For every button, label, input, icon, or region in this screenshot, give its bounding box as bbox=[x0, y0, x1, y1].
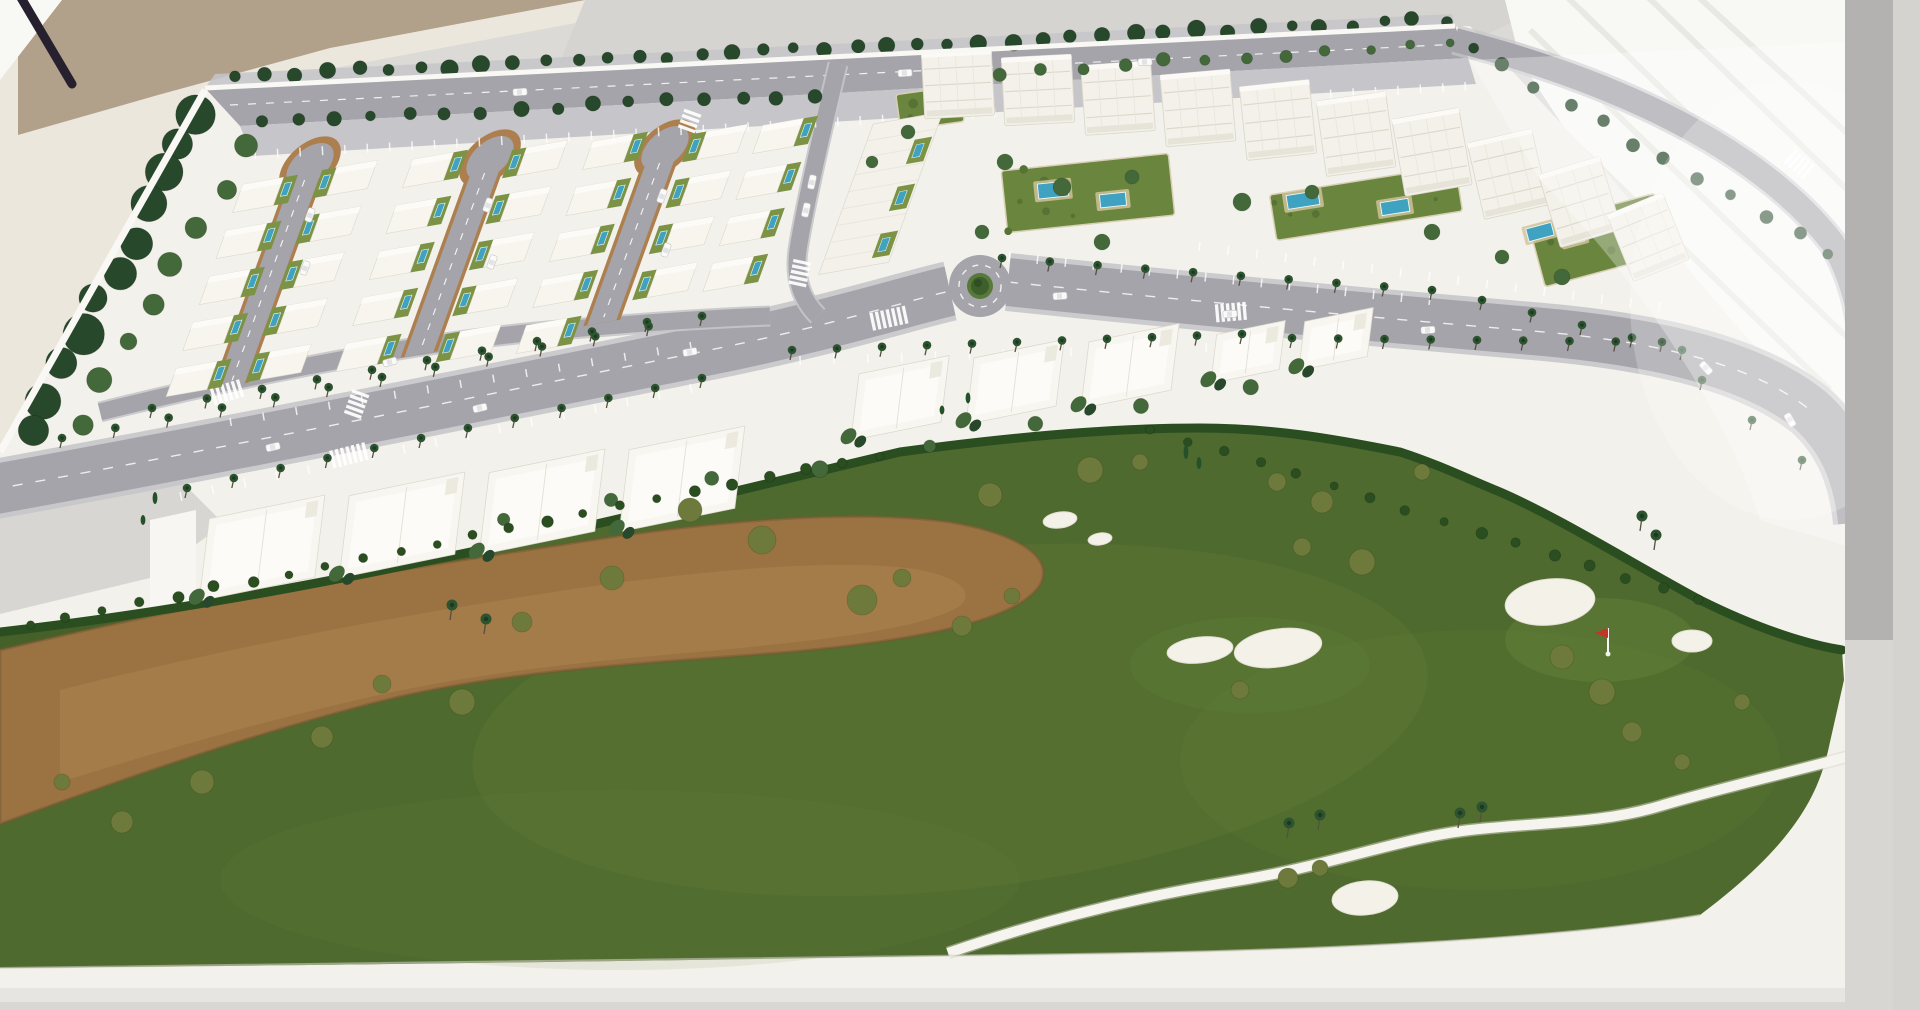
palm-crown-core bbox=[1475, 338, 1478, 341]
tree bbox=[634, 50, 647, 63]
palm-crown-core bbox=[1239, 274, 1242, 277]
model-car bbox=[1053, 292, 1067, 300]
window-frame-bar bbox=[1845, 0, 1893, 640]
tree bbox=[993, 68, 1006, 81]
tree bbox=[120, 333, 137, 350]
palm-crown-core bbox=[1015, 340, 1018, 343]
tree bbox=[1183, 438, 1192, 447]
palm-crown-core bbox=[487, 355, 490, 358]
tree bbox=[1330, 482, 1338, 490]
bush bbox=[1053, 178, 1071, 196]
palm-crown-core bbox=[434, 365, 437, 368]
palm-crown-core bbox=[60, 436, 63, 439]
parking-stripe bbox=[367, 144, 368, 153]
tree bbox=[504, 523, 514, 533]
tree bbox=[1511, 538, 1521, 548]
palm-crown-core bbox=[326, 456, 329, 459]
tree bbox=[416, 62, 427, 73]
palm-crown-core bbox=[1458, 811, 1462, 815]
bush bbox=[1094, 234, 1110, 250]
palm-crown-core bbox=[315, 378, 318, 381]
tree bbox=[1584, 560, 1595, 571]
tree bbox=[541, 55, 552, 66]
cypress-tree bbox=[1184, 445, 1189, 459]
bush bbox=[1278, 868, 1298, 888]
car-windshield bbox=[517, 89, 522, 94]
palm-crown-core bbox=[1383, 337, 1386, 340]
palm-crown-core bbox=[1654, 533, 1658, 537]
palm-crown-core bbox=[327, 385, 330, 388]
tree bbox=[18, 415, 48, 445]
bush bbox=[54, 774, 70, 790]
tree bbox=[87, 367, 112, 392]
tree bbox=[660, 92, 674, 106]
parking-stripe bbox=[1261, 278, 1262, 287]
tree bbox=[837, 458, 847, 468]
bush bbox=[1312, 860, 1328, 876]
tree bbox=[579, 509, 587, 517]
parking-stripe bbox=[1401, 293, 1402, 302]
apartment-block bbox=[921, 49, 994, 119]
palm-crown-core bbox=[232, 476, 235, 479]
tree bbox=[1365, 493, 1375, 503]
parking-stripe bbox=[389, 142, 390, 151]
bush bbox=[600, 566, 624, 590]
tree bbox=[623, 96, 634, 107]
cypress-tree bbox=[966, 393, 971, 404]
bush bbox=[1674, 754, 1690, 770]
palm-crown-core bbox=[1290, 336, 1293, 339]
tree bbox=[788, 43, 798, 53]
tree bbox=[808, 89, 822, 103]
tree bbox=[143, 294, 164, 315]
tree bbox=[1028, 416, 1043, 431]
palm-crown-core bbox=[1480, 298, 1483, 301]
bush bbox=[1077, 457, 1103, 483]
tree bbox=[1146, 425, 1155, 434]
bush bbox=[1004, 588, 1020, 604]
model-car bbox=[513, 88, 527, 96]
tree bbox=[319, 62, 335, 78]
apartment-block bbox=[1239, 80, 1316, 161]
tree bbox=[757, 44, 769, 56]
tree bbox=[185, 217, 207, 239]
bush bbox=[866, 156, 878, 168]
tree bbox=[1243, 379, 1259, 395]
tree bbox=[769, 91, 783, 105]
window-frame-bar-lower bbox=[1845, 640, 1893, 1010]
tree bbox=[397, 547, 406, 556]
tree bbox=[468, 530, 477, 539]
tree bbox=[851, 39, 865, 53]
apartment-block bbox=[1392, 108, 1473, 197]
bush bbox=[1495, 250, 1509, 264]
parking-stripe bbox=[1009, 252, 1010, 261]
tree bbox=[293, 113, 305, 125]
parking-stripe bbox=[1345, 287, 1346, 296]
palm-crown-core bbox=[1522, 339, 1525, 342]
parking-stripe bbox=[658, 127, 659, 136]
bush bbox=[1311, 491, 1333, 513]
palm-crown-core bbox=[484, 617, 488, 621]
parking-stripe bbox=[501, 136, 502, 145]
bush bbox=[952, 616, 972, 636]
bush bbox=[1349, 549, 1375, 575]
townhouse-notch bbox=[1265, 326, 1279, 344]
parking-stripe bbox=[1420, 85, 1421, 94]
tree bbox=[1620, 573, 1630, 583]
palm-crown-core bbox=[1060, 339, 1063, 342]
tree bbox=[1241, 53, 1252, 64]
tree bbox=[1469, 43, 1479, 53]
palm-crown-core bbox=[370, 368, 373, 371]
palm-crown-core bbox=[260, 387, 263, 390]
palm-crown-core bbox=[590, 330, 593, 333]
palm-crown-core bbox=[535, 339, 538, 342]
palm-crown-core bbox=[653, 386, 656, 389]
palm-crown-core bbox=[279, 466, 282, 469]
tree bbox=[474, 107, 487, 120]
bush bbox=[1293, 538, 1311, 556]
palm-crown-core bbox=[700, 376, 703, 379]
car-windshield bbox=[1425, 327, 1430, 332]
tree bbox=[1446, 39, 1454, 47]
tree bbox=[173, 592, 184, 603]
tree bbox=[1155, 25, 1170, 40]
palm-crown-core bbox=[1429, 338, 1432, 341]
tree bbox=[800, 463, 811, 474]
townhouse-notch bbox=[929, 361, 943, 379]
tree bbox=[878, 37, 895, 54]
parking-stripe bbox=[1317, 284, 1318, 293]
tree bbox=[1078, 64, 1089, 75]
tree bbox=[602, 52, 613, 63]
tree bbox=[542, 516, 554, 528]
bush bbox=[1550, 645, 1574, 669]
tree bbox=[208, 580, 219, 591]
tree bbox=[705, 471, 719, 485]
turf-light-patch bbox=[220, 790, 1020, 970]
tree bbox=[248, 577, 259, 588]
tree bbox=[234, 134, 257, 157]
tree bbox=[724, 44, 740, 60]
tree bbox=[472, 55, 490, 73]
floor-strip bbox=[0, 1002, 1845, 1010]
tree bbox=[811, 461, 828, 478]
cypress-tree bbox=[940, 406, 945, 415]
tree bbox=[60, 613, 70, 623]
parking-stripe bbox=[748, 122, 749, 131]
tree bbox=[1200, 55, 1210, 65]
palm-crown-core bbox=[607, 396, 610, 399]
palm-crown-core bbox=[1195, 334, 1198, 337]
bush bbox=[1125, 170, 1139, 184]
tree bbox=[404, 107, 416, 119]
tree bbox=[365, 111, 375, 121]
townhouse-notch bbox=[1353, 313, 1367, 331]
palm-crown-core bbox=[380, 375, 383, 378]
tree bbox=[941, 39, 952, 50]
model-scene-svg bbox=[0, 0, 1920, 1010]
tree bbox=[433, 540, 441, 548]
palm-crown-core bbox=[373, 446, 376, 449]
parking-stripe bbox=[860, 116, 861, 125]
parking-stripe bbox=[1233, 275, 1234, 284]
tree bbox=[615, 501, 624, 510]
parking-stripe bbox=[322, 146, 323, 155]
tree bbox=[876, 452, 884, 460]
palm-crown-core bbox=[205, 397, 208, 400]
tree bbox=[1291, 468, 1301, 478]
palm-crown-core bbox=[513, 416, 516, 419]
car-windshield bbox=[687, 349, 693, 355]
townhouse-notch bbox=[1159, 329, 1173, 347]
palm-crown-core bbox=[167, 416, 170, 419]
palm-crown-core bbox=[150, 406, 153, 409]
tree bbox=[514, 101, 530, 117]
palm-crown-core bbox=[1144, 267, 1147, 270]
tree bbox=[1287, 21, 1297, 31]
palm-crown-core bbox=[880, 345, 883, 348]
car-windshield bbox=[1142, 59, 1147, 64]
palm-crown-core bbox=[645, 320, 648, 323]
tree bbox=[1406, 40, 1415, 49]
right-edge-sliver bbox=[1893, 0, 1920, 1010]
car-windshield bbox=[902, 70, 907, 75]
bush bbox=[1554, 269, 1570, 285]
tree bbox=[1187, 20, 1205, 38]
bush bbox=[1305, 185, 1319, 199]
tree bbox=[924, 440, 936, 452]
tree bbox=[256, 115, 268, 127]
tree bbox=[1133, 398, 1148, 413]
bush bbox=[1414, 464, 1430, 480]
parking-stripe bbox=[1373, 290, 1374, 299]
sand-bunker bbox=[1672, 630, 1712, 652]
bush bbox=[373, 675, 391, 693]
bush bbox=[1622, 722, 1642, 742]
parking-stripe bbox=[1177, 270, 1178, 279]
parking-stripe bbox=[1443, 83, 1444, 92]
bush bbox=[512, 612, 532, 632]
palm-crown-core bbox=[220, 406, 223, 409]
car-windshield bbox=[1227, 311, 1232, 317]
tree bbox=[1250, 18, 1266, 34]
palm-crown-core bbox=[1580, 323, 1583, 326]
bush bbox=[901, 125, 915, 139]
tree bbox=[1367, 46, 1376, 55]
tree bbox=[1219, 446, 1229, 456]
parking-stripe bbox=[345, 145, 346, 154]
tree bbox=[1658, 583, 1669, 594]
palm-crown-core bbox=[1480, 805, 1484, 809]
tree bbox=[697, 48, 709, 60]
cypress-tree bbox=[141, 515, 146, 525]
parking-stripe bbox=[1331, 90, 1332, 99]
palm-crown-core bbox=[419, 436, 422, 439]
palm-crown-core bbox=[1287, 278, 1290, 281]
palm-crown-core bbox=[1240, 332, 1243, 335]
parking-stripe bbox=[1037, 255, 1038, 264]
tree bbox=[1280, 50, 1292, 62]
palm-crown-core bbox=[1105, 337, 1108, 340]
tree bbox=[1440, 518, 1448, 526]
parking-stripe bbox=[838, 117, 839, 126]
palm-crown-core bbox=[1000, 256, 1003, 259]
car-windshield bbox=[1057, 293, 1062, 299]
palm-crown-core bbox=[1048, 260, 1051, 263]
tree bbox=[585, 96, 600, 111]
model-car bbox=[1223, 310, 1237, 318]
parking-stripe bbox=[1465, 82, 1466, 91]
bush bbox=[449, 689, 475, 715]
palm-crown-core bbox=[1096, 263, 1099, 266]
tree bbox=[1034, 63, 1046, 75]
model-car bbox=[1421, 326, 1435, 334]
tree bbox=[573, 54, 585, 66]
tree bbox=[359, 553, 368, 562]
tree bbox=[1380, 16, 1390, 26]
apartment-block bbox=[1160, 69, 1236, 147]
tree bbox=[98, 606, 106, 614]
palm-crown-core bbox=[1150, 336, 1153, 339]
parking-stripe bbox=[1429, 296, 1430, 305]
parking-stripe bbox=[412, 141, 413, 150]
tree bbox=[285, 571, 293, 579]
apartment-block bbox=[1081, 61, 1156, 136]
tree bbox=[1400, 506, 1410, 516]
apartment-block bbox=[1316, 91, 1396, 176]
tree bbox=[73, 415, 93, 435]
palm-crown-core bbox=[1318, 813, 1322, 817]
pool-water bbox=[1099, 192, 1126, 208]
parking-stripe bbox=[569, 132, 570, 141]
palm-crown-core bbox=[1614, 340, 1617, 343]
tree bbox=[726, 479, 738, 491]
bush bbox=[1268, 473, 1286, 491]
roundabout bbox=[949, 255, 1011, 317]
palm-crown-core bbox=[185, 486, 188, 489]
palm-crown-core bbox=[1640, 514, 1644, 518]
palm-crown-core bbox=[540, 345, 543, 348]
bush bbox=[997, 154, 1013, 170]
townhouse-notch bbox=[1044, 345, 1058, 363]
tree bbox=[697, 93, 710, 106]
palm-crown-core bbox=[1191, 271, 1194, 274]
townhouse-notch bbox=[585, 454, 599, 472]
tree bbox=[1156, 52, 1170, 66]
bush bbox=[311, 726, 333, 748]
tree bbox=[229, 71, 240, 82]
palm-crown-core bbox=[1287, 821, 1291, 825]
palm-crown-core bbox=[114, 426, 117, 429]
tree bbox=[505, 55, 519, 69]
parking-stripe bbox=[591, 131, 592, 140]
tree bbox=[1694, 595, 1704, 605]
bush bbox=[978, 483, 1002, 507]
palm-crown-core bbox=[274, 396, 277, 399]
palm-crown-core bbox=[1568, 339, 1571, 342]
tree bbox=[689, 486, 700, 497]
palm-crown-core bbox=[560, 406, 563, 409]
car-windshield bbox=[803, 208, 809, 214]
tree bbox=[911, 38, 923, 50]
tree bbox=[1063, 30, 1076, 43]
parking-stripe bbox=[457, 139, 458, 148]
tree bbox=[257, 67, 271, 81]
cypress-tree bbox=[153, 492, 158, 504]
bush bbox=[190, 770, 214, 794]
parking-stripe bbox=[434, 140, 435, 149]
parking-stripe bbox=[524, 135, 525, 144]
parking-stripe bbox=[277, 149, 278, 158]
bush bbox=[893, 569, 911, 587]
bush bbox=[748, 526, 776, 554]
tree bbox=[383, 64, 394, 75]
tree bbox=[1476, 527, 1488, 539]
bush bbox=[1734, 694, 1750, 710]
tree bbox=[353, 61, 367, 75]
tree bbox=[552, 103, 564, 115]
tree bbox=[287, 68, 302, 83]
parking-stripe bbox=[1398, 86, 1399, 95]
bush bbox=[1233, 193, 1251, 211]
parking-stripe bbox=[300, 147, 301, 156]
palm-crown-core bbox=[1430, 288, 1433, 291]
palm-crown-core bbox=[1335, 281, 1338, 284]
pool bbox=[1095, 189, 1131, 211]
bush bbox=[1231, 681, 1249, 699]
palm-crown-core bbox=[925, 344, 928, 347]
model-car bbox=[1138, 58, 1152, 65]
palm-crown-core bbox=[1530, 311, 1533, 314]
tree bbox=[1549, 550, 1560, 561]
model-car bbox=[898, 69, 912, 77]
tree bbox=[321, 562, 329, 570]
palm-crown-core bbox=[835, 347, 838, 350]
car-windshield bbox=[809, 180, 815, 186]
parking-stripe bbox=[1065, 258, 1066, 267]
townhouse-notch bbox=[305, 500, 319, 518]
palm-crown-core bbox=[700, 314, 703, 317]
tree bbox=[737, 92, 750, 105]
tree bbox=[134, 597, 144, 607]
bush bbox=[1589, 679, 1615, 705]
palm-crown-core bbox=[1383, 285, 1386, 288]
townhouse-notch bbox=[445, 477, 459, 495]
tree bbox=[1319, 45, 1330, 56]
parking-stripe bbox=[479, 137, 480, 146]
bush bbox=[975, 225, 989, 239]
tree bbox=[1256, 457, 1266, 467]
palm-crown-core bbox=[480, 349, 483, 352]
tree bbox=[1119, 59, 1132, 72]
palm-crown-core bbox=[425, 359, 428, 362]
bush bbox=[1132, 454, 1148, 470]
palm-crown-core bbox=[970, 342, 973, 345]
palm-crown-core bbox=[466, 426, 469, 429]
tree bbox=[327, 111, 342, 126]
tree bbox=[217, 180, 236, 199]
architectural-model-photo bbox=[0, 0, 1920, 1010]
bush bbox=[847, 585, 877, 615]
roundabout-bush-core bbox=[974, 279, 982, 287]
bush bbox=[1424, 224, 1440, 240]
tree bbox=[158, 252, 182, 276]
tree bbox=[438, 108, 450, 120]
palm-crown-core bbox=[450, 603, 454, 607]
tree bbox=[1404, 11, 1418, 25]
